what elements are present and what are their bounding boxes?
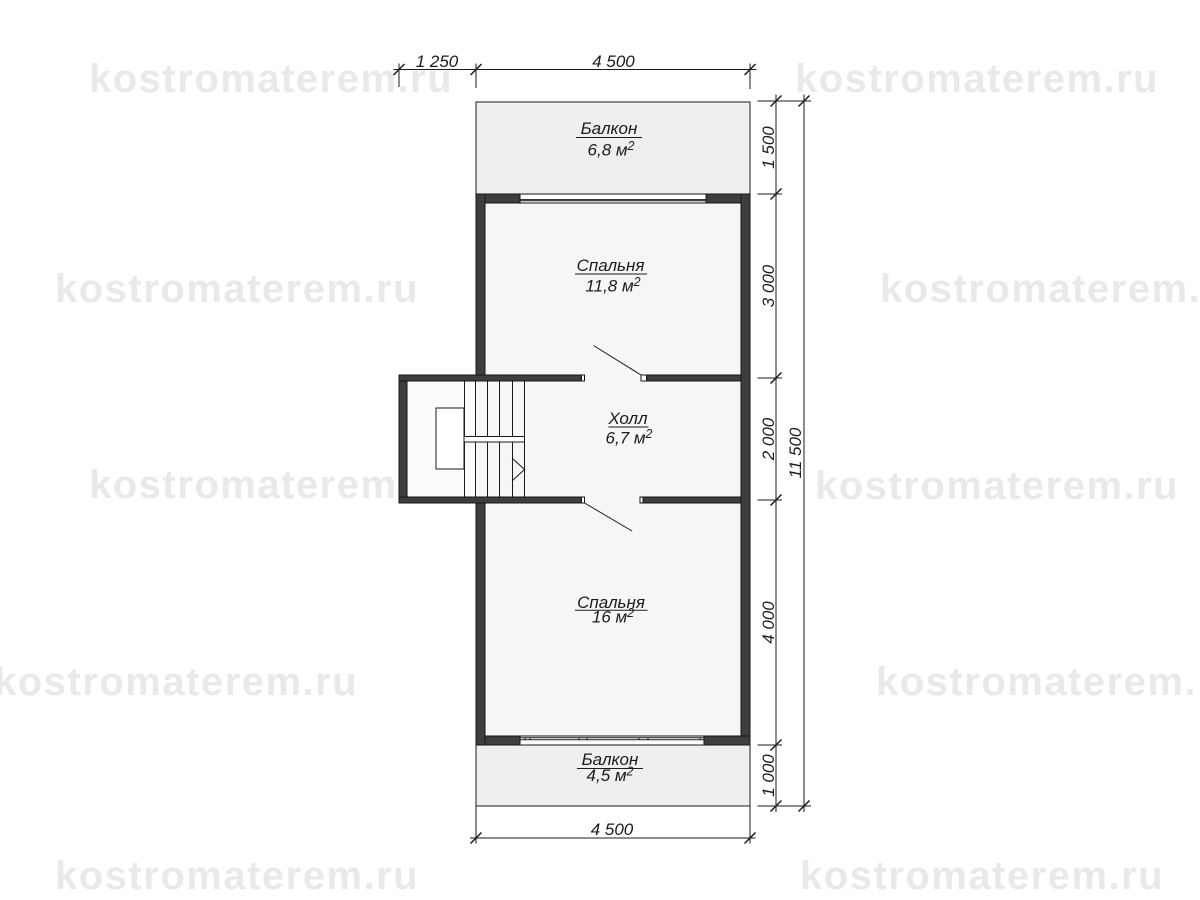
svg-text:Холл: Холл (607, 409, 648, 428)
svg-text:3 000: 3 000 (759, 264, 778, 307)
svg-text:kostromaterem.ru: kostromaterem.ru (55, 854, 419, 898)
svg-text:11,8 м2: 11,8 м2 (585, 275, 640, 296)
svg-text:Спальня: Спальня (577, 256, 645, 275)
svg-text:6,7 м2: 6,7 м2 (606, 427, 653, 448)
svg-text:4 500: 4 500 (591, 820, 634, 839)
svg-text:kostromaterem.ru: kostromaterem.ru (800, 854, 1164, 898)
svg-text:4,5 м2: 4,5 м2 (587, 765, 634, 786)
svg-text:2 000: 2 000 (759, 417, 778, 461)
svg-text:1 500: 1 500 (759, 126, 778, 169)
svg-text:kostromaterem.ru: kostromaterem.ru (795, 57, 1159, 101)
svg-text:4 500: 4 500 (592, 52, 635, 71)
svg-text:6,8 м2: 6,8 м2 (588, 139, 635, 160)
svg-text:kostromaterem.ru: kostromaterem.ru (815, 464, 1179, 508)
svg-text:1 250: 1 250 (416, 52, 459, 71)
svg-text:kostromaterem.ru: kostromaterem.ru (55, 267, 419, 311)
svg-text:Балкон: Балкон (581, 119, 638, 138)
svg-text:kostromaterem.ru: kostromaterem.ru (0, 660, 358, 704)
svg-text:11 500: 11 500 (786, 427, 805, 478)
svg-text:kostromaterem.ru: kostromaterem.ru (876, 660, 1200, 704)
svg-text:1 000: 1 000 (759, 754, 778, 797)
svg-text:kostromaterem.ru: kostromaterem.ru (880, 267, 1200, 311)
svg-text:4 000: 4 000 (759, 601, 778, 644)
